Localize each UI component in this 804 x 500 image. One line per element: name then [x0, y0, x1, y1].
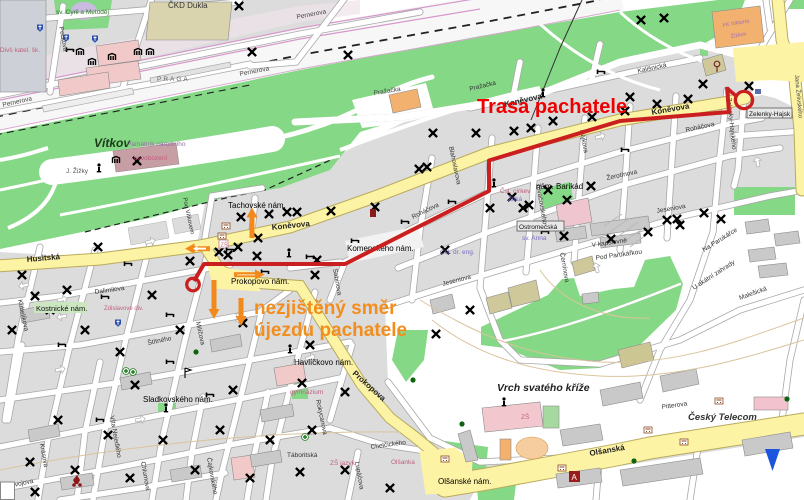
svg-text:Táboritská: Táboritská: [287, 452, 318, 459]
svg-text:ČKD Dukla: ČKD Dukla: [168, 1, 208, 10]
svg-text:újezdu pachatele: újezdu pachatele: [254, 320, 407, 341]
svg-text:Zdislavové div.: Zdislavové div.: [104, 306, 144, 312]
svg-text:Havlíčkovo nám.: Havlíčkovo nám.: [294, 358, 353, 367]
svg-text:Olšanka: Olšanka: [391, 459, 415, 466]
svg-text:Ostromečská: Ostromečská: [519, 224, 558, 231]
svg-text:Sladkovského nám.: Sladkovského nám.: [143, 395, 213, 404]
svg-text:A: A: [572, 473, 578, 482]
svg-text:Památník národního: Památník národního: [127, 141, 186, 148]
svg-text:Žitká: Žitká: [508, 194, 522, 203]
svg-text:Kostnické nám.: Kostnické nám.: [36, 304, 87, 313]
svg-text:J. Žižky: J. Žižky: [66, 166, 89, 175]
svg-text:Divš katel. šk.: Divš katel. šk.: [0, 47, 40, 54]
svg-text:Český Telecom: Český Telecom: [688, 411, 757, 423]
svg-text:nezjištěný směr: nezjištěný směr: [254, 298, 397, 319]
svg-text:Vítkov: Vítkov: [94, 136, 131, 150]
svg-text:sv. Anna: sv. Anna: [522, 235, 547, 242]
svg-text:ZŠ jazyk: ZŠ jazyk: [330, 458, 356, 467]
svg-text:ZŠ: ZŠ: [521, 412, 530, 421]
svg-text:Prokopovo nám.: Prokopovo nám.: [231, 277, 289, 286]
svg-text:PRAGA: PRAGA: [157, 76, 190, 83]
svg-text:Tachovské nám.: Tachovské nám.: [228, 201, 286, 210]
svg-text:sv. Cyril a Metoděj: sv. Cyril a Metoděj: [56, 9, 109, 16]
svg-text:Čsl. dr. eng.: Čsl. dr. eng.: [440, 247, 475, 256]
svg-text:osvobození: osvobození: [134, 155, 167, 162]
svg-text:Trasa pachatele: Trasa pachatele: [477, 96, 627, 118]
svg-text:Olšanské nám.: Olšanské nám.: [438, 477, 491, 486]
svg-text:ZŠ: ZŠ: [221, 242, 228, 249]
svg-text:Vrch svatého kříže: Vrch svatého kříže: [497, 382, 590, 394]
svg-text:Čsl. církev: Čsl. církev: [500, 186, 531, 195]
svg-text:gymnázium: gymnázium: [290, 389, 323, 396]
svg-text:Zelenky-Hajsk: Zelenky-Hajsk: [749, 111, 791, 118]
